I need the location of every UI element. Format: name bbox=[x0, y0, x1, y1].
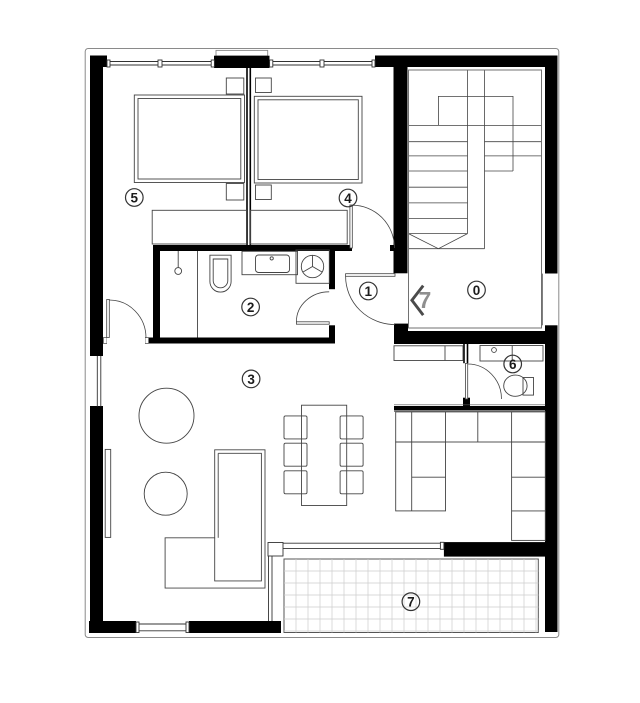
svg-text:4: 4 bbox=[344, 191, 352, 206]
svg-text:7: 7 bbox=[407, 595, 415, 610]
svg-text:6: 6 bbox=[509, 357, 517, 372]
svg-text:5: 5 bbox=[131, 190, 139, 205]
svg-text:2: 2 bbox=[247, 300, 255, 315]
svg-text:3: 3 bbox=[247, 372, 255, 387]
svg-text:1: 1 bbox=[365, 284, 373, 299]
svg-text:7: 7 bbox=[419, 287, 432, 313]
svg-text:0: 0 bbox=[473, 283, 481, 298]
